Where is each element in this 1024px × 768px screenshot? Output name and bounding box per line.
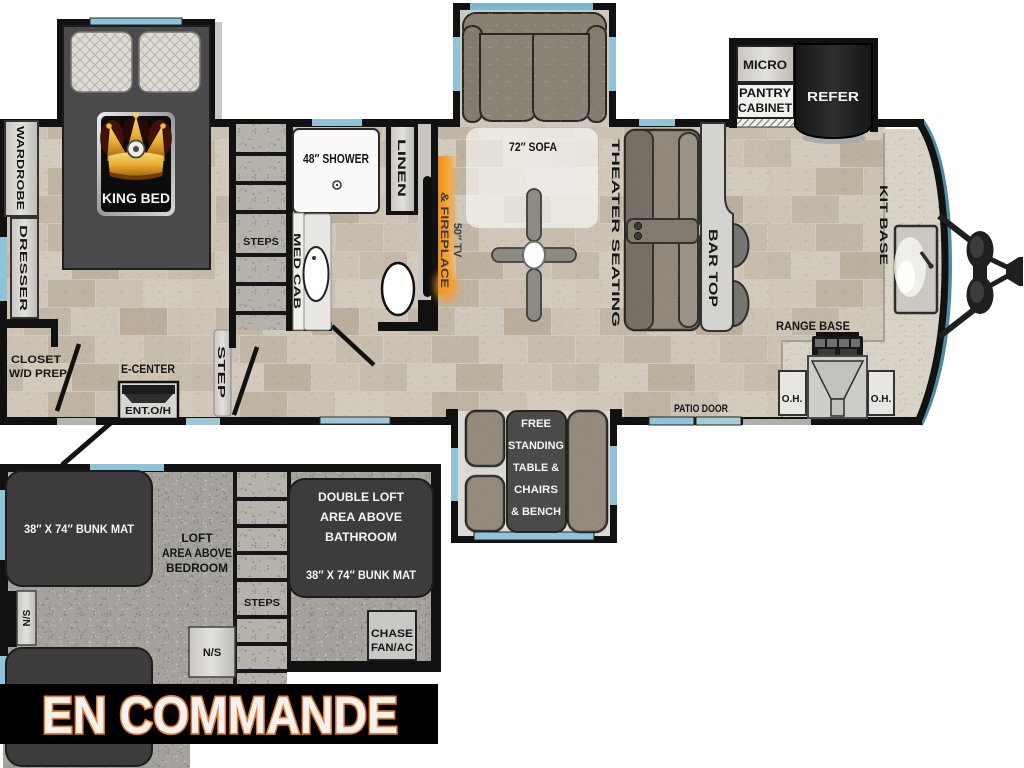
svg-text:MICRO: MICRO bbox=[743, 58, 787, 72]
svg-text:& BENCH: & BENCH bbox=[511, 506, 561, 518]
svg-text:EN COMMANDE: EN COMMANDE bbox=[42, 687, 398, 745]
svg-text:AREA ABOVE: AREA ABOVE bbox=[162, 546, 232, 560]
svg-text:RANGE BASE: RANGE BASE bbox=[776, 321, 850, 333]
svg-text:CABINET: CABINET bbox=[738, 101, 793, 115]
svg-text:38″ X 74″ BUNK MAT: 38″ X 74″ BUNK MAT bbox=[24, 524, 134, 536]
svg-text:CHASE: CHASE bbox=[371, 628, 413, 640]
svg-text:CLOSET: CLOSET bbox=[11, 354, 61, 366]
svg-text:DOUBLE LOFT: DOUBLE LOFT bbox=[318, 490, 405, 504]
svg-text:STEPS: STEPS bbox=[243, 236, 279, 248]
svg-text:FAN/AC: FAN/AC bbox=[371, 642, 413, 654]
svg-text:WARDROBE: WARDROBE bbox=[14, 126, 26, 210]
svg-text:MED CAB: MED CAB bbox=[291, 233, 302, 309]
svg-text:BAR TOP: BAR TOP bbox=[706, 229, 720, 307]
svg-text:STANDING: STANDING bbox=[508, 440, 564, 452]
svg-text:TABLE &: TABLE & bbox=[513, 462, 559, 474]
svg-text:REFER: REFER bbox=[807, 89, 860, 104]
svg-text:STEP: STEP bbox=[215, 346, 226, 399]
svg-text:FREE: FREE bbox=[521, 418, 551, 430]
svg-text:E-CENTER: E-CENTER bbox=[121, 364, 176, 376]
svg-text:PATIO DOOR: PATIO DOOR bbox=[674, 403, 728, 415]
svg-text:O.H.: O.H. bbox=[871, 394, 892, 405]
svg-text:N/S: N/S bbox=[22, 609, 33, 626]
svg-text:THEATER SEATING: THEATER SEATING bbox=[609, 139, 621, 327]
svg-text:LINEN: LINEN bbox=[395, 139, 407, 197]
svg-text:O.H.: O.H. bbox=[782, 394, 803, 405]
svg-text:KIT BASE: KIT BASE bbox=[877, 185, 889, 265]
svg-text:BATHROOM: BATHROOM bbox=[325, 530, 397, 544]
svg-text:LOFT: LOFT bbox=[181, 531, 213, 545]
svg-text:48″ SHOWER: 48″ SHOWER bbox=[303, 152, 369, 166]
svg-text:N/S: N/S bbox=[203, 647, 221, 659]
svg-text:72″ SOFA: 72″ SOFA bbox=[509, 142, 557, 154]
svg-text:BEDROOM: BEDROOM bbox=[166, 561, 228, 575]
svg-text:KING BED: KING BED bbox=[102, 190, 170, 206]
svg-text:DRESSER: DRESSER bbox=[17, 225, 29, 312]
svg-text:50″ TV: 50″ TV bbox=[451, 223, 463, 258]
svg-text:AREA ABOVE: AREA ABOVE bbox=[320, 510, 402, 524]
svg-text:ENT.O/H: ENT.O/H bbox=[125, 405, 171, 417]
svg-text:CHAIRS: CHAIRS bbox=[514, 484, 558, 496]
svg-text:& FIREPLACE: & FIREPLACE bbox=[438, 192, 450, 288]
svg-text:STEPS: STEPS bbox=[244, 597, 280, 609]
svg-text:W/D PREP: W/D PREP bbox=[9, 368, 67, 380]
svg-text:38″ X 74″ BUNK MAT: 38″ X 74″ BUNK MAT bbox=[306, 570, 416, 582]
svg-text:PANTRY: PANTRY bbox=[739, 86, 791, 100]
